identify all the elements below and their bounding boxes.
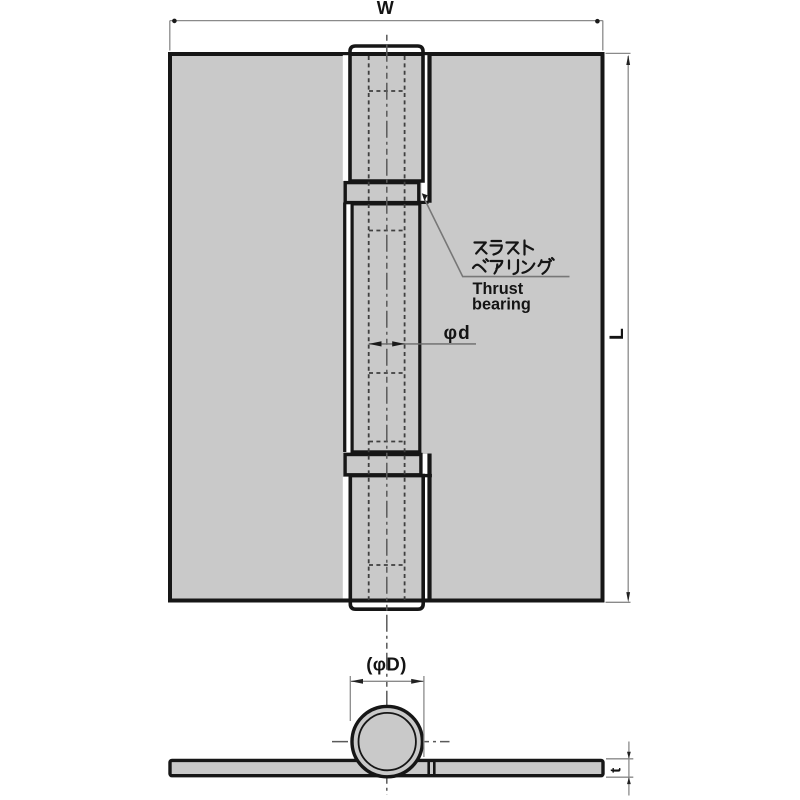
svg-text:φd: φd	[444, 323, 471, 344]
svg-text:t: t	[608, 768, 625, 773]
svg-text:W: W	[377, 0, 394, 18]
svg-text:(φD): (φD)	[366, 654, 407, 675]
svg-text:bearing: bearing	[472, 296, 531, 314]
svg-text:L: L	[606, 328, 628, 340]
